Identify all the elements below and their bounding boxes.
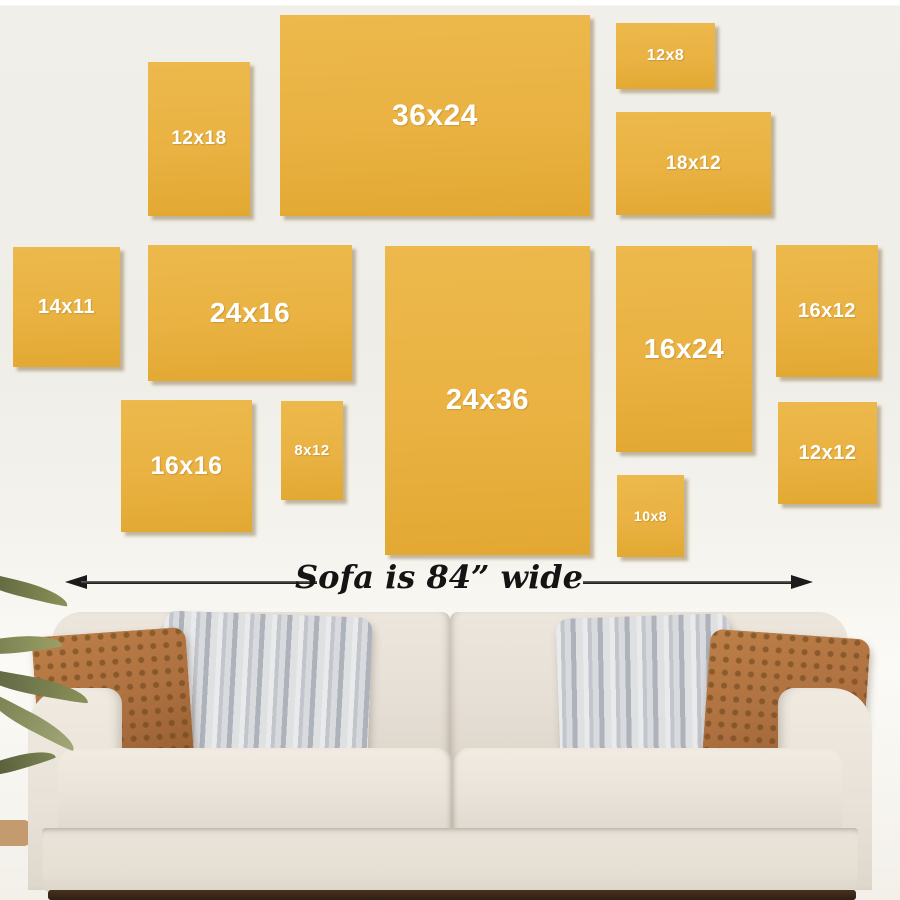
canvas-16x12: 16x12: [776, 245, 878, 377]
right-arrowhead-icon: [791, 575, 813, 589]
canvas-label: 14x11: [38, 296, 95, 319]
floor-shadow: [48, 890, 856, 900]
canvas-12x12: 12x12: [778, 402, 877, 504]
sofa-base: [42, 828, 858, 892]
canvas-label: 12x12: [798, 442, 856, 465]
canvas-label: 16x12: [798, 300, 856, 323]
canvas-label: 16x24: [644, 333, 724, 365]
canvas-14x11: 14x11: [13, 247, 120, 367]
canvas-8x12: 8x12: [281, 401, 343, 500]
canvas-label: 36x24: [392, 99, 478, 133]
canvas-24x16: 24x16: [148, 245, 352, 381]
canvas-16x16: 16x16: [121, 400, 252, 532]
sofa-width-caption: Sofa is 84” wide: [295, 558, 583, 596]
sofa-seat-cushion-right: [452, 748, 842, 840]
canvas-label: 12x8: [647, 47, 685, 65]
canvas-label: 16x16: [150, 452, 222, 481]
canvas-label: 18x12: [666, 153, 721, 175]
canvas-10x8: 10x8: [617, 475, 684, 557]
canvas-12x8: 12x8: [616, 23, 715, 89]
canvas-36x24: 36x24: [280, 15, 590, 216]
dimension-line-right: [583, 581, 795, 584]
canvas-label: 24x36: [446, 384, 529, 417]
dimension-line-left: [81, 581, 317, 584]
wall-art-size-guide-scene: 12x18 36x24 12x8 18x12 14x11 24x16 24x36…: [0, 0, 900, 900]
canvas-label: 24x16: [210, 297, 290, 329]
sofa: [0, 600, 900, 900]
canvas-label: 12x18: [171, 128, 226, 150]
canvas-24x36: 24x36: [385, 246, 590, 555]
canvas-label: 8x12: [294, 442, 329, 459]
sofa-seat-cushion-left: [58, 748, 452, 840]
canvas-label: 10x8: [634, 508, 667, 524]
canvas-18x12: 18x12: [616, 112, 771, 215]
sofa-width-dimension: Sofa is 84” wide: [65, 571, 813, 593]
canvas-16x24: 16x24: [616, 246, 752, 452]
canvas-12x18: 12x18: [148, 62, 250, 216]
